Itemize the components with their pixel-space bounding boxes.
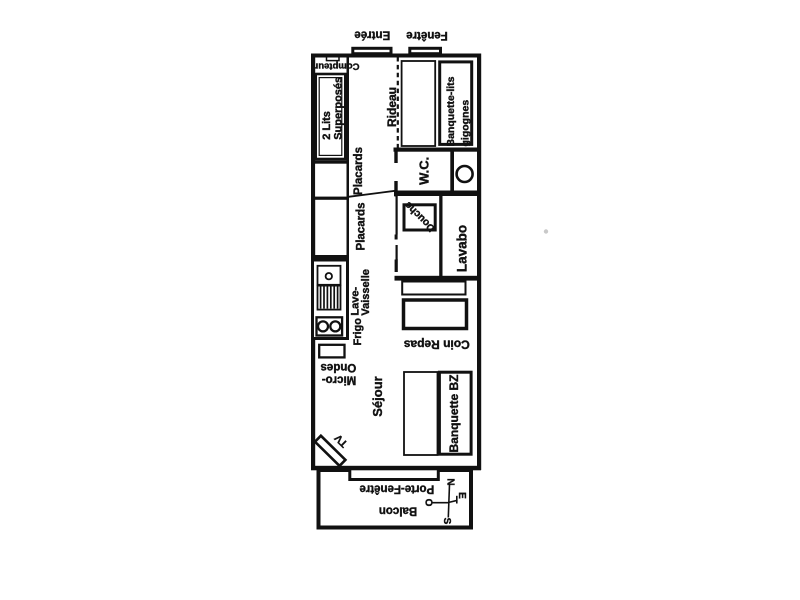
svg-text:W.C.: W.C. (417, 157, 432, 185)
svg-text:S: S (441, 518, 452, 525)
svg-text:Rideau: Rideau (385, 87, 399, 127)
svg-text:2 Lits: 2 Lits (321, 111, 333, 140)
svg-text:Lavabo: Lavabo (455, 225, 470, 272)
svg-text:Fenêtre: Fenêtre (406, 29, 448, 41)
svg-text:gigognes: gigognes (460, 100, 472, 147)
svg-text:Frigo: Frigo (352, 318, 364, 346)
svg-text:N: N (444, 478, 455, 485)
svg-text:Ondes: Ondes (321, 361, 357, 373)
svg-text:Micro-: Micro- (322, 373, 357, 385)
svg-text:Séjour: Séjour (370, 376, 385, 416)
svg-text:E: E (456, 492, 467, 499)
svg-text:Placards: Placards (356, 203, 368, 251)
svg-text:Coin Repas: Coin Repas (403, 338, 469, 352)
svg-text:Balcon: Balcon (379, 504, 417, 516)
svg-text:O: O (422, 499, 433, 507)
svg-text:Porte-Fenêtre: Porte-Fenêtre (359, 482, 434, 494)
svg-text:Placards: Placards (353, 147, 365, 195)
svg-text:Vaisselle: Vaisselle (360, 269, 372, 316)
svg-text:Superposés: Superposés (332, 77, 344, 140)
svg-text:Banquette BZ: Banquette BZ (447, 375, 461, 453)
svg-text:Entrée: Entrée (354, 29, 390, 41)
svg-text:Banquette-lits: Banquette-lits (445, 76, 457, 146)
svg-text:Compteur: Compteur (314, 60, 359, 71)
